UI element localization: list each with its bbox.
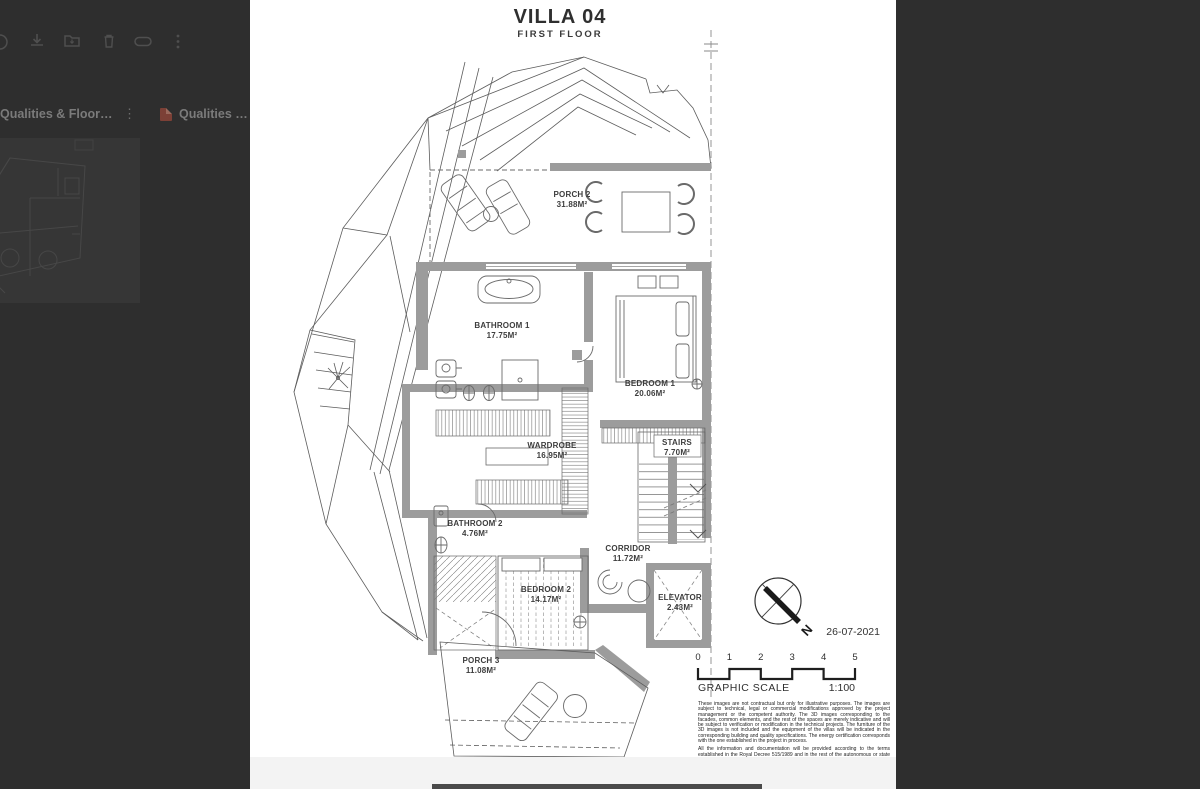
dimmed-file-browser: Qualities & Floorpla... ⋮: [0, 0, 250, 789]
tree-symbol: [328, 362, 350, 389]
scale-ratio: 1:100: [829, 682, 855, 694]
room-label: BATHROOM 117.75M²: [474, 321, 529, 340]
room-label: BATHROOM 24.76M²: [447, 519, 502, 538]
link-icon[interactable]: [132, 31, 152, 51]
porch2-furniture: [430, 170, 694, 262]
room-label: WARDROBE16.95M²: [527, 441, 576, 460]
scale-tick: 3: [790, 652, 795, 663]
scale-tick: 1: [727, 652, 732, 663]
plan-date: 26-07-2021: [750, 626, 880, 638]
preview-toolbar: [0, 31, 200, 55]
add-to-folder-icon[interactable]: [62, 31, 82, 51]
trash-icon[interactable]: [99, 31, 119, 51]
page-title: VILLA 04: [410, 6, 710, 29]
page-subtitle: FIRST FLOOR: [410, 29, 710, 40]
deck-hatch: [434, 556, 496, 650]
download-icon[interactable]: [27, 31, 47, 51]
back-icon[interactable]: [0, 31, 10, 51]
room-label: CORRIDOR11.72M²: [605, 544, 650, 563]
corridor-furniture: [598, 570, 650, 602]
scale-tick: 4: [821, 652, 826, 663]
floor-plan-drawing: N: [250, 0, 896, 757]
room-label: PORCH 231.88M²: [554, 190, 591, 209]
room-label: STAIRS7.70M²: [662, 438, 692, 457]
room-label: BEDROOM 120.06M²: [625, 379, 675, 398]
page-gap: [250, 757, 896, 789]
bedroom1-furniture: [616, 276, 702, 389]
graphic-scale: 0 1 2 3 4 5 GRAPHIC SCALE 1:100: [698, 652, 855, 698]
more-options-icon[interactable]: [168, 31, 188, 51]
room-label: PORCH 311.08M²: [463, 656, 500, 675]
next-page-edge: [432, 784, 762, 789]
file-card[interactable]: Qualities & Floorpla... ⋮: [0, 104, 140, 124]
scale-tick: 2: [758, 652, 763, 663]
scale-tick: 5: [852, 652, 857, 663]
room-label: ELEVATOR2.43M²: [658, 593, 702, 612]
file-card[interactable]: Qualities & Floorpla...: [160, 104, 250, 124]
kebab-menu-icon[interactable]: ⋮: [119, 106, 140, 122]
file-thumbnail[interactable]: [0, 138, 140, 303]
roof-outline: [428, 57, 711, 171]
pdf-icon: [160, 108, 172, 121]
scale-tick: 0: [695, 652, 700, 663]
drive-preview-screen: Qualities & Floorpla... ⋮: [0, 0, 1200, 789]
file-card-title: Qualities & Floorpla...: [0, 107, 119, 121]
file-card-title: Qualities & Floorpla...: [179, 107, 250, 121]
pdf-page: N VILLA 04 FIRST FLOOR PORCH 231.88M² BA…: [250, 0, 896, 757]
scale-label: GRAPHIC SCALE: [698, 682, 790, 694]
terrace-outline: [294, 62, 493, 641]
room-label: BEDROOM 214.17M²: [521, 585, 571, 604]
